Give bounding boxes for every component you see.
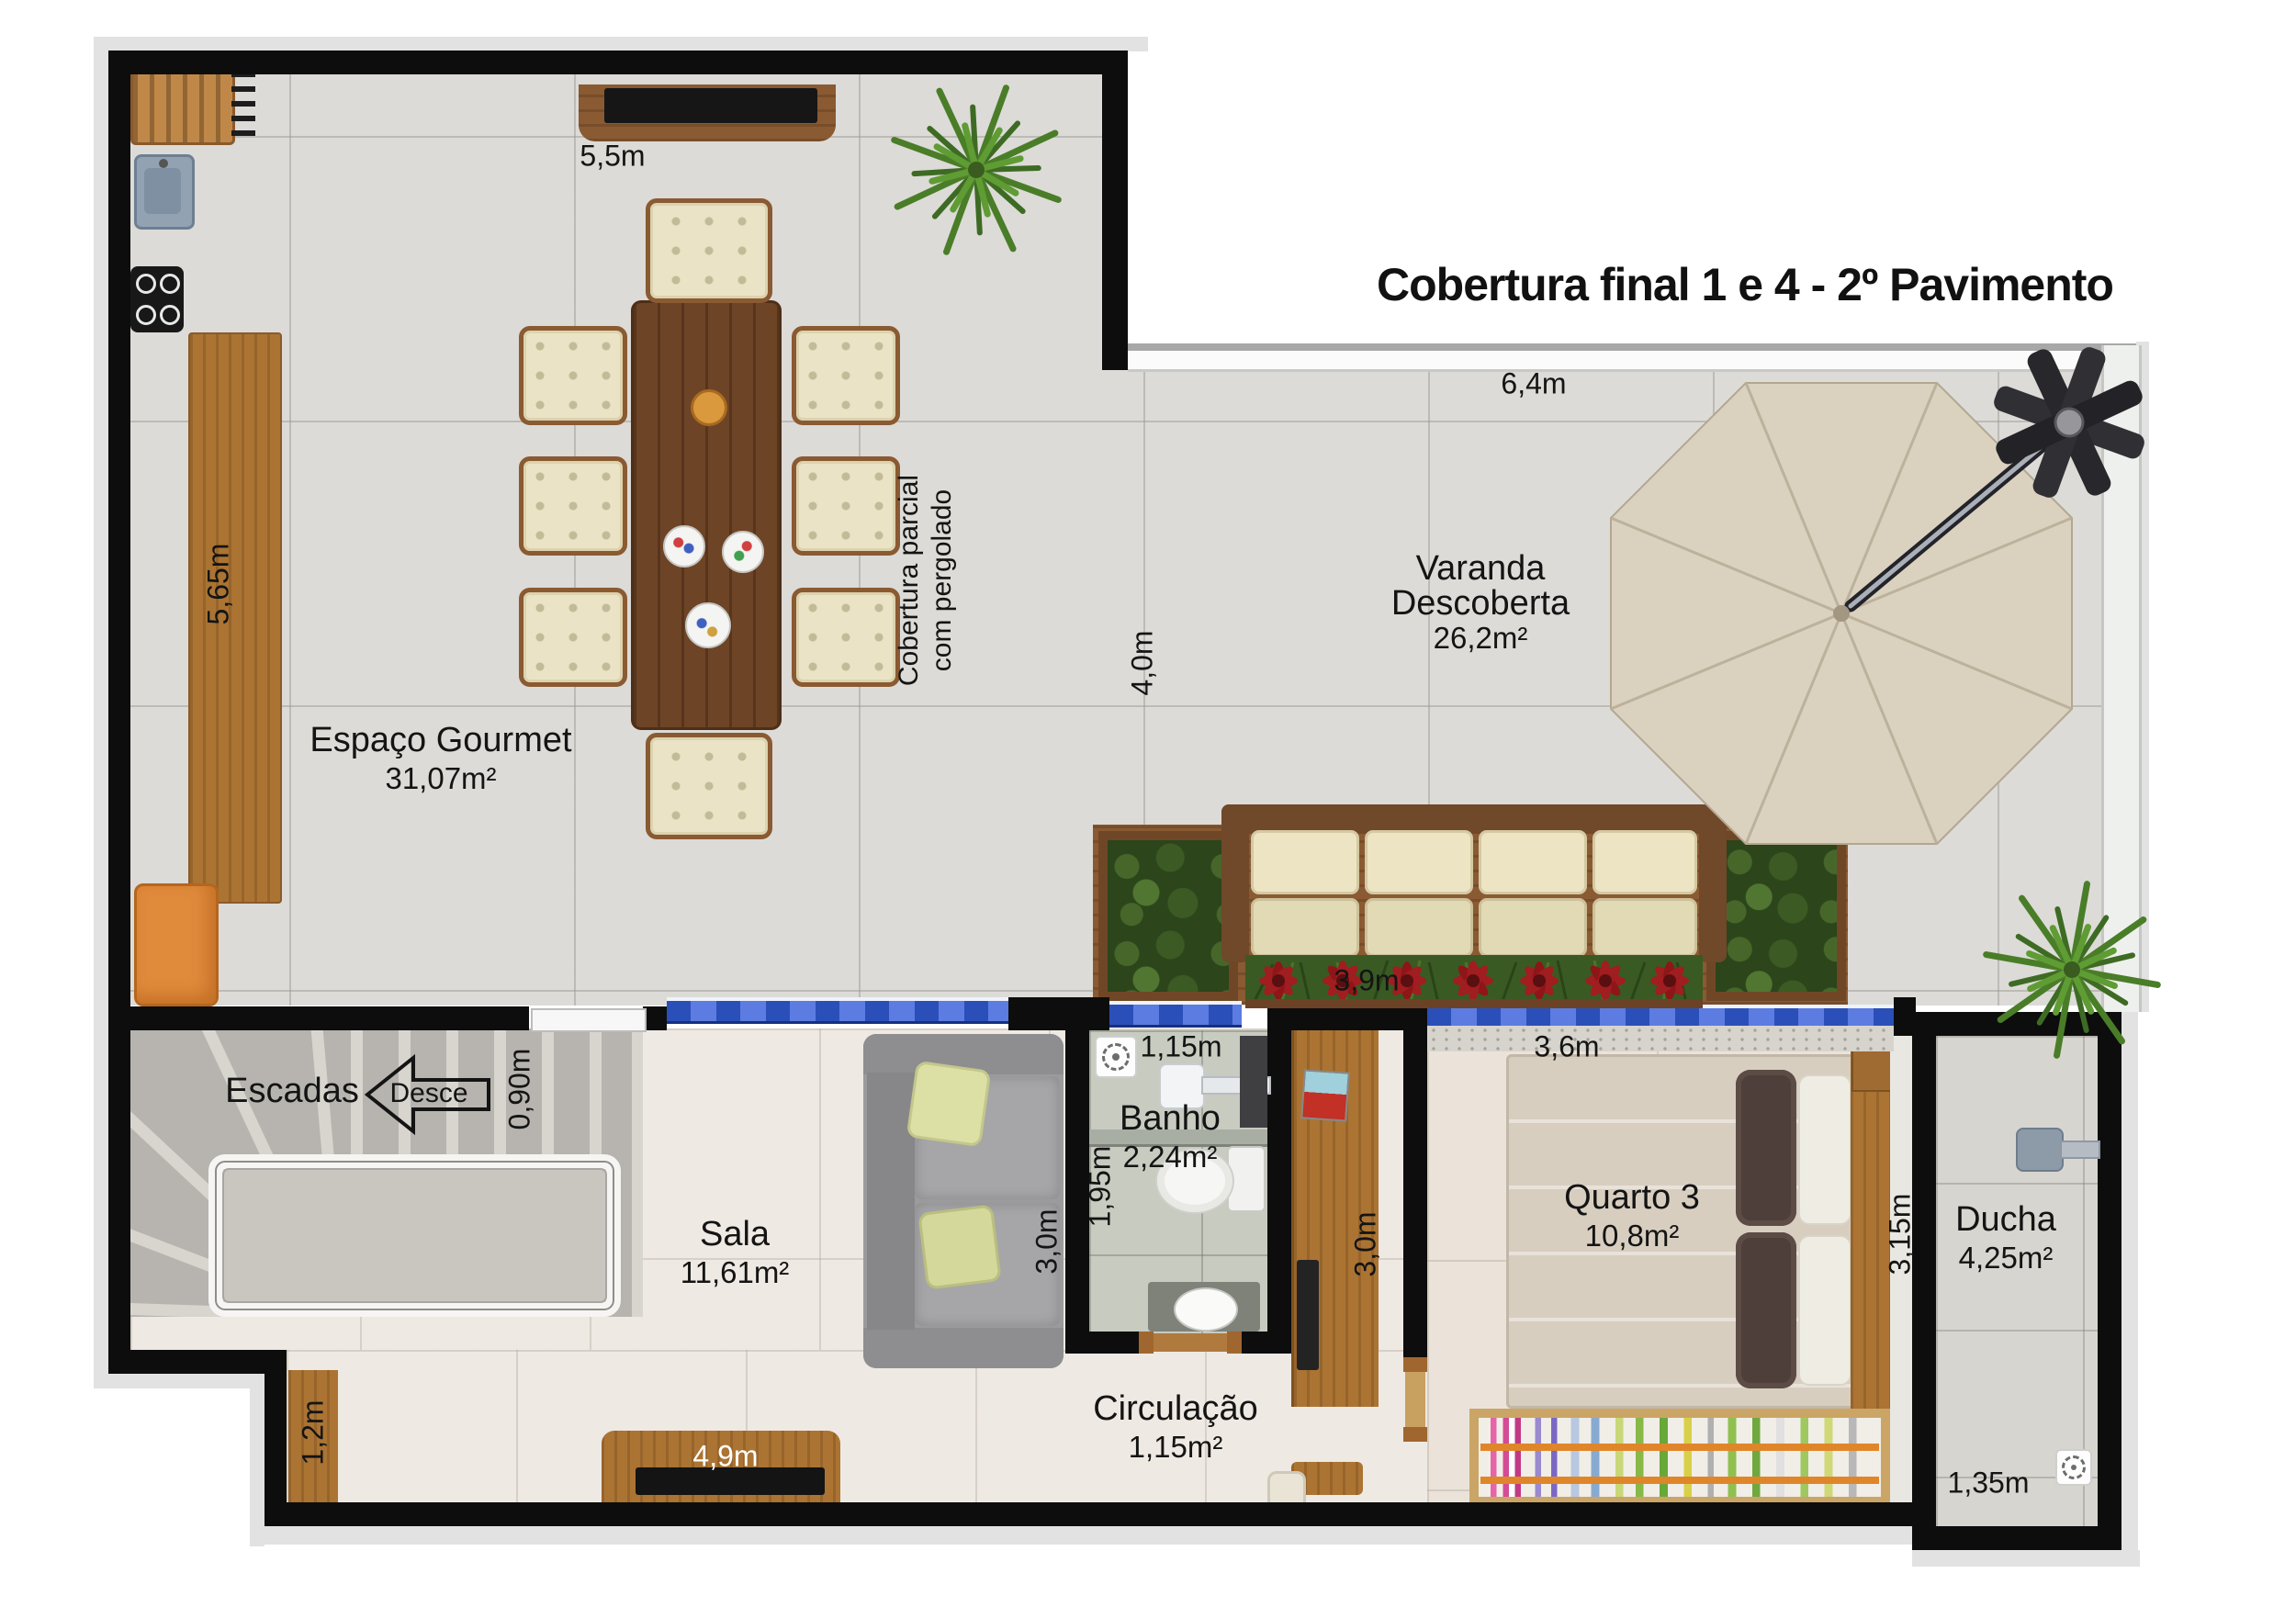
flower-bed-edge [1245,999,1703,1008]
wall-gourmet-right-upper [1102,51,1128,370]
kitchen-sink [134,154,195,230]
wardrobe-rod [1480,1444,1879,1451]
dim-kitchen-counter: 5,65m [202,544,236,625]
plan-outer-frame-ducha-right [2122,1008,2138,1559]
patio-umbrella [1561,338,2167,889]
window-banho [1109,1001,1242,1028]
wall-left [108,51,130,1374]
door-jamb [1403,1427,1427,1442]
wall-banho-right [1267,1001,1291,1354]
plan-outer-frame-left [94,37,108,1388]
stairs-label: Escadas [225,1071,359,1111]
dim-varanda-sofa: 3,9m [1334,964,1399,998]
dim-ducha-width: 1,35m [1948,1467,2030,1500]
table-plate [722,531,764,573]
sofa-seat-cushion [1479,898,1587,957]
sofa-back-cushion [1365,830,1473,894]
sala-pillow [917,1204,1002,1289]
dim-sala-height: 3,0m [1030,1208,1064,1274]
desk-monitor [1297,1260,1319,1370]
gourmet-tv [604,88,817,123]
circulacao-area: 1,15m² [1093,1429,1258,1466]
gourmet-label: Espaço Gourmet 31,07m² [310,720,571,797]
page-title: Cobertura final 1 e 4 - 2º Pavimento [1377,258,2113,311]
bed-pillow-dark [1736,1232,1796,1388]
plan-outer-frame-ducha-bottom [1912,1550,2140,1567]
bed-pillow-dark [1736,1070,1796,1226]
wall-banho-bottom-left [1065,1332,1141,1354]
wall-circ-quarto [1403,1006,1427,1357]
stairs-arrow-label: Desce [389,1078,467,1109]
dining-chair [519,326,627,425]
floorplan-page: { "title": "Cobertura final 1 e 4 - 2º P… [0,0,2296,1607]
door-jamb [1403,1357,1427,1372]
vent-icon [1095,1036,1137,1078]
dim-gourmet-top: 5,5m [580,140,645,174]
wall-bottom [264,1502,1912,1526]
wall-stairs-top [119,1006,529,1030]
sofa-seat-cushion [1365,898,1473,957]
table-bowl [691,389,727,426]
circulacao-label: Circulação 1,15m² [1093,1388,1258,1466]
varanda-planter [1098,831,1238,1001]
sofa-back-cushion [1251,830,1359,894]
bed-pillow-white [1798,1074,1851,1225]
table-plate [663,525,705,568]
orange-cabinet [134,883,219,1006]
dim-quarto-width: 3,6m [1534,1030,1599,1064]
wall-lower-left-horizontal [108,1350,287,1374]
door-threshold-quarto [1405,1372,1425,1427]
dim-banho-height: 1,95m [1084,1146,1118,1228]
pergola-note: Cobertura parcial com pergolado [893,475,959,686]
varanda-label: Varanda Descoberta 26,2m² [1391,548,1570,657]
wall-ducha-left [1912,1012,1936,1550]
ducha-label: Ducha 4,25m² [1955,1199,2056,1276]
plan-outer-frame-bottom [250,1526,1912,1545]
plant-gourmet [884,78,1068,262]
dim-banho-width: 1,15m [1141,1030,1222,1064]
circulacao-name: Circulação [1093,1388,1258,1429]
dining-chair [792,588,900,687]
sofa-seat-cushion [1251,898,1359,957]
shower-head-ducha [2016,1128,2064,1172]
grill-knobs [231,70,259,140]
door-threshold-banho [1154,1333,1227,1352]
gourmet-area: 31,07m² [310,760,571,797]
ducha-name: Ducha [1955,1199,2056,1240]
quarto-name: Quarto 3 [1564,1177,1700,1218]
dim-ducha-height: 3,15m [1884,1194,1918,1275]
sofa-seat-cushion [1593,898,1697,957]
quarto-area: 10,8m² [1564,1218,1700,1254]
sala-sofa-arm [863,1328,1064,1368]
wall-corner-block [1008,997,1109,1030]
table-plate [685,602,731,648]
shower-partition [1240,1036,1267,1128]
plan-outer-frame-step [94,1374,287,1388]
desk-picture [1300,1069,1350,1121]
banho-name: Banho [1120,1098,1221,1139]
wall-banho-bottom-right [1240,1332,1291,1354]
varanda-sofa-arm [1221,804,1249,962]
wall-lower-left-vertical [264,1350,287,1526]
dim-varanda-top: 6,4m [1501,367,1566,401]
gourmet-name: Espaço Gourmet [310,720,571,760]
dining-table [634,303,779,727]
wall-top [108,51,1128,74]
dim-stairs-door: 0,90m [503,1049,537,1130]
door-stairs [531,1008,647,1032]
pergola-note-line2: com pergolado [926,475,959,686]
window-quarto-sill [1427,1026,1894,1051]
door-jamb [1227,1332,1242,1354]
dim-circ-height: 3,0m [1349,1211,1383,1276]
sala-area: 11,61m² [681,1254,790,1291]
pergola-note-line1: Cobertura parcial [893,475,926,686]
wardrobe-rod [1480,1477,1879,1484]
sala-name: Sala [681,1214,790,1254]
varanda-name-line2: Descoberta [1391,583,1570,624]
sala-label: Sala 11,61m² [681,1214,790,1291]
wall-ducha-bottom [1912,1526,2122,1550]
dim-sala-step: 1,2m [297,1399,331,1465]
dining-chair [792,456,900,556]
sala-pillow [906,1061,992,1148]
dining-chair [792,326,900,425]
dining-chair [646,733,772,839]
window-gourmet-sala [667,997,1008,1024]
dining-chair [519,456,627,556]
banho-sink-basin [1174,1287,1238,1332]
ducha-area: 4,25m² [1955,1240,2056,1276]
cooktop [130,266,184,332]
dining-chair [519,588,627,687]
banho-label: Banho 2,24m² [1120,1098,1221,1175]
dim-varanda-height: 4,0m [1126,630,1160,695]
sala-sofa-back [867,1073,915,1330]
plant-ducha-corner [1980,878,2164,1062]
drain-icon [2055,1449,2092,1486]
banho-area: 2,24m² [1120,1139,1221,1175]
door-jamb [1139,1332,1154,1354]
wall-ducha-right [2098,1012,2122,1550]
varanda-area: 26,2m² [1391,620,1570,657]
shower-arm-ducha [2060,1141,2100,1159]
bed-pillow-white [1798,1235,1851,1386]
quarto-label: Quarto 3 10,8m² [1564,1177,1700,1254]
wardrobe [1469,1409,1890,1506]
dining-chair [646,198,772,303]
plan-outer-frame-top [94,37,1148,51]
dim-sala-tv: 4,9m [692,1440,758,1474]
